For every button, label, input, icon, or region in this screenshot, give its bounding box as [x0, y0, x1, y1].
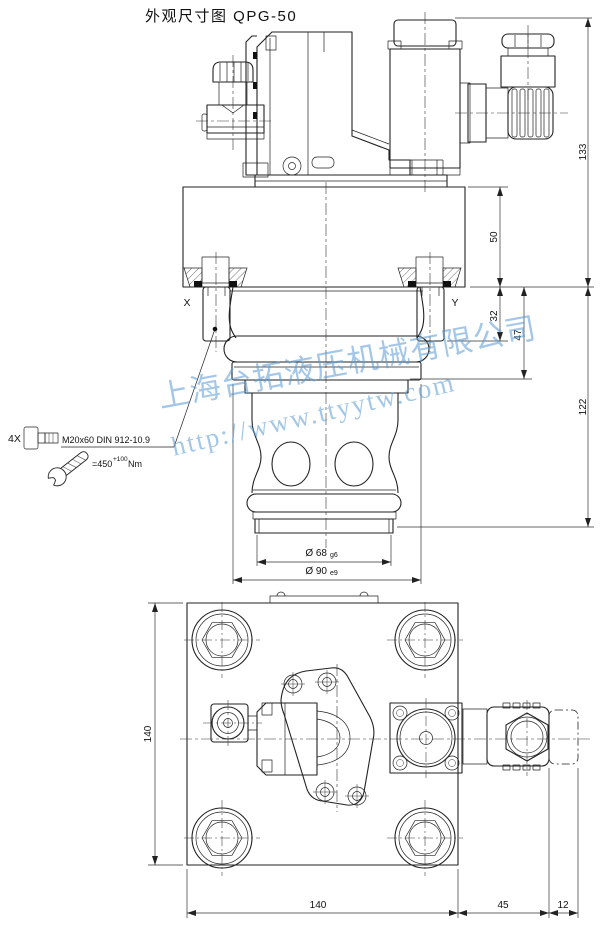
flange-screw — [345, 784, 369, 808]
dim-plate-width: 140 45 12 — [187, 768, 578, 918]
valve-flange-top-view — [281, 664, 374, 812]
torque-value: =450 — [92, 459, 112, 469]
side-view: X Y Ø 68 g6 Ø 90 e9 — [8, 12, 594, 584]
main-block — [183, 187, 465, 287]
leader-line — [174, 329, 215, 447]
socket-bolt-top-left — [184, 602, 260, 678]
port-flange-top-view — [390, 698, 462, 778]
subplate — [255, 175, 447, 187]
name-plate — [270, 596, 378, 603]
hex-plug — [463, 700, 578, 776]
torque-unit: Nm — [128, 459, 142, 469]
pilot-valve-body — [257, 32, 443, 175]
cartridge-sleeve — [224, 287, 429, 393]
flange-bolt-x — [184, 252, 247, 352]
dim-133: 133 — [578, 143, 589, 160]
socket-bolt-top-right — [387, 602, 463, 678]
phantom-connector — [549, 710, 578, 764]
solenoid-coil — [388, 12, 470, 192]
page-title: 外观尺寸图 QPG-50 — [145, 8, 297, 25]
dim-140-width: 140 — [310, 900, 327, 911]
svg-text:g6: g6 — [330, 552, 338, 559]
side-port — [335, 442, 373, 486]
dim-122: 122 — [578, 398, 589, 415]
port-label-x: X — [183, 297, 190, 309]
dim-47: 47 — [513, 329, 524, 341]
cartridge-body — [247, 182, 401, 548]
dim-plate-height: 140 — [143, 603, 183, 865]
technical-drawing: 外观尺寸图 QPG-50 — [0, 0, 600, 928]
flange-screw — [281, 672, 305, 696]
svg-text:Ø 68: Ø 68 — [305, 548, 327, 559]
port-label-y: Y — [451, 297, 458, 309]
bolt-spec: M20x60 DIN 912-10.9 — [62, 435, 150, 445]
svg-text:e9: e9 — [330, 570, 338, 577]
bolt-qty: 4X — [8, 433, 21, 445]
dim-dia-90: Ø 90 e9 — [233, 384, 421, 584]
dim-32: 32 — [489, 310, 500, 322]
cable-connector — [455, 25, 568, 142]
svg-text:140: 140 — [143, 725, 154, 742]
flange-screw — [313, 780, 337, 804]
dim-right-side: 133 50 32 47 122 — [397, 18, 594, 527]
dim-dia-68: Ø 68 g6 — [257, 535, 391, 566]
dim-12: 12 — [557, 900, 569, 911]
dim-50: 50 — [489, 231, 500, 243]
wrench-icon — [45, 447, 92, 489]
manual-override-valve — [196, 55, 271, 150]
torque-tolerance: +100 — [113, 456, 128, 463]
drawing-page: 外观尺寸图 QPG-50 — [0, 0, 600, 928]
bottom-view: 140 140 45 12 — [143, 592, 590, 918]
bolt-note: 4X M20x60 DIN 912-10.9 =450 +100 Nm — [8, 327, 217, 489]
side-port — [272, 442, 310, 486]
dim-45: 45 — [497, 900, 509, 911]
bolt-icon — [24, 427, 58, 449]
svg-text:Ø 90: Ø 90 — [305, 566, 327, 577]
flange-screw — [315, 670, 339, 694]
